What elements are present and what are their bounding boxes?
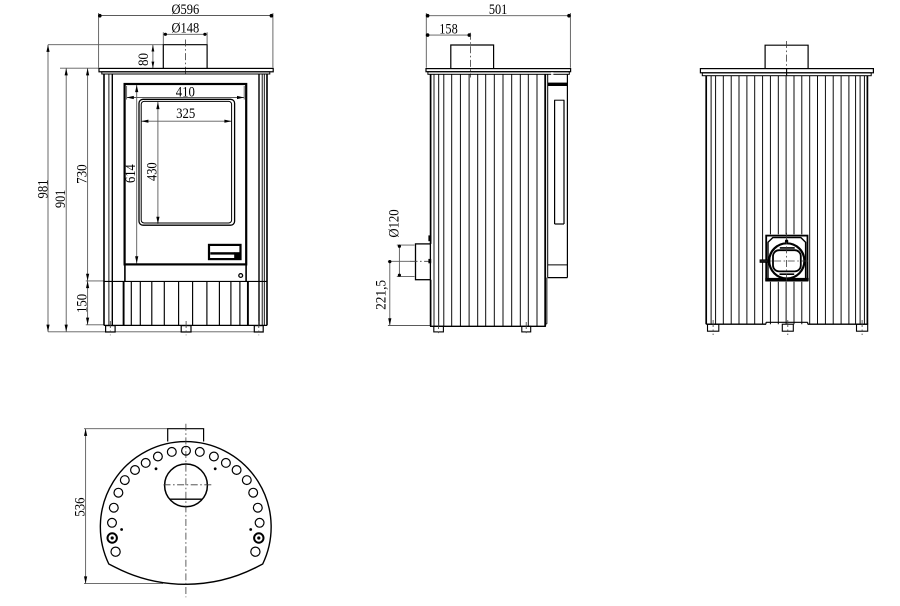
svg-text:80: 80 [136, 53, 152, 66]
svg-text:150: 150 [74, 294, 90, 313]
svg-text:730: 730 [74, 164, 90, 184]
svg-text:501: 501 [489, 2, 508, 18]
svg-text:410: 410 [176, 85, 195, 101]
svg-text:221,5: 221,5 [373, 280, 389, 310]
svg-text:325: 325 [176, 106, 195, 122]
svg-text:Ø120: Ø120 [387, 209, 403, 237]
svg-text:901: 901 [53, 190, 69, 208]
svg-text:Ø596: Ø596 [172, 2, 200, 18]
svg-text:981: 981 [35, 180, 51, 199]
svg-text:430: 430 [144, 162, 160, 181]
svg-text:158: 158 [439, 22, 457, 38]
svg-text:536: 536 [73, 497, 89, 516]
svg-text:Ø148: Ø148 [172, 21, 200, 37]
